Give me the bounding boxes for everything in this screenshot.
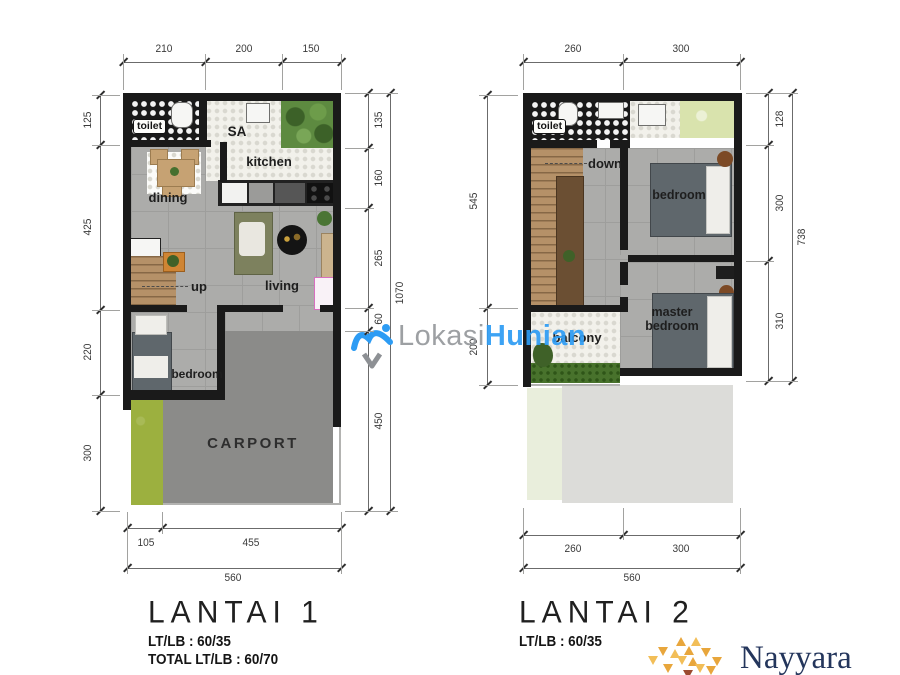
room-label-dining: dining: [149, 190, 188, 205]
ext-line: [623, 508, 624, 540]
dim-line: [523, 535, 740, 536]
bench: [716, 266, 736, 279]
ext-line: [345, 331, 374, 332]
bed-blanket-1: [134, 356, 168, 378]
dim-line: [127, 568, 341, 569]
dim-label: 560: [624, 572, 641, 584]
wall: [123, 140, 211, 147]
ext-line: [162, 512, 163, 534]
side-table-plant: [167, 255, 179, 267]
stair-railing: [556, 176, 584, 307]
roof-green-strip: [527, 388, 562, 500]
laundry-box: [638, 104, 666, 126]
carport-outline-right: [339, 427, 341, 505]
dim-label: 150: [303, 43, 320, 55]
wall: [734, 93, 742, 376]
room-label-sa: SA: [228, 124, 247, 139]
dim-label: 310: [774, 313, 786, 330]
room-label-carport: CARPORT: [207, 435, 299, 452]
watermark-text: LokasiHunian: [398, 320, 586, 353]
sofa-cushion: [239, 222, 265, 256]
dim-line: [792, 93, 793, 381]
ext-line: [479, 95, 518, 96]
logo-triangle: [701, 648, 711, 657]
dim-label: 105: [138, 537, 155, 549]
dim-label: 220: [82, 344, 94, 361]
ext-line: [740, 54, 741, 90]
wall: [217, 305, 225, 400]
dim-line: [523, 568, 740, 569]
room-label-down: down: [588, 156, 622, 171]
bed-pillows-master: [707, 296, 732, 368]
wall: [620, 368, 742, 376]
plan2-ltlb: LT/LB : 60/35: [519, 634, 602, 650]
toilet-sink-2: [598, 102, 624, 119]
room-label-bedroom-2: bedroom: [652, 188, 705, 202]
grass-strip-1: [131, 400, 163, 505]
watermark-part2: Hunian: [485, 320, 586, 353]
kitchen-sink: [249, 183, 273, 203]
logo-triangle: [706, 666, 716, 675]
ext-line: [746, 93, 798, 94]
ext-line: [479, 385, 518, 386]
ext-line: [523, 54, 524, 90]
wall: [199, 100, 207, 143]
dim-label: 160: [373, 170, 385, 187]
logo-triangle: [663, 664, 673, 673]
wall: [320, 305, 341, 312]
carport-outline-bottom: [163, 503, 341, 505]
rug-round: [717, 151, 733, 167]
dim-label: 260: [565, 543, 582, 555]
ext-line: [740, 508, 741, 574]
room-label-living: living: [265, 278, 299, 293]
dim-label: 560: [225, 572, 242, 584]
dim-label: 300: [774, 195, 786, 212]
ext-line: [92, 511, 120, 512]
dim-label: 425: [82, 219, 94, 236]
watermark-part1: Lokasi: [398, 320, 485, 353]
kitchen-stove: [307, 183, 335, 203]
dim-line: [368, 93, 369, 511]
dim-label: 300: [673, 543, 690, 555]
room-label-up: up: [191, 279, 207, 294]
watermark-pin-icon: [350, 314, 394, 370]
kitchen-worktop: [275, 183, 305, 203]
dim-label: 210: [156, 43, 173, 55]
carport-area-left: [163, 400, 225, 505]
ext-line: [92, 310, 120, 311]
wall: [523, 305, 628, 312]
ext-line: [92, 395, 120, 396]
sa-sink: [246, 103, 270, 123]
wall: [333, 93, 341, 427]
dim-label: 200: [236, 43, 253, 55]
ext-line: [746, 381, 798, 382]
carport-area-main: [225, 331, 333, 505]
ext-line: [746, 261, 774, 262]
dim-label: 450: [373, 413, 385, 430]
room-label-toilet-2: toilet: [533, 119, 566, 134]
up-direction-line: [142, 286, 188, 287]
wall: [523, 93, 742, 101]
ext-line: [123, 54, 124, 90]
wall: [523, 140, 597, 148]
logo-triangle: [658, 647, 668, 656]
wall: [620, 262, 628, 285]
garden-patch-2: [680, 101, 734, 138]
bed-pillows-2: [706, 166, 730, 234]
dim-label: 128: [774, 111, 786, 128]
logo-triangle: [691, 637, 701, 646]
dim-line: [768, 93, 769, 381]
nayyara-logo-text: Nayyara: [740, 640, 852, 675]
ext-line: [341, 512, 342, 574]
down-direction-line: [545, 163, 587, 164]
ext-line: [341, 54, 342, 90]
ext-line: [205, 54, 206, 90]
hall-cabinet: [127, 238, 161, 258]
ext-line: [282, 54, 283, 90]
dim-line: [390, 93, 391, 511]
wall: [123, 390, 225, 400]
dim-label: 265: [373, 250, 385, 267]
living-plant: [317, 211, 332, 226]
dim-label: 455: [243, 537, 260, 549]
plan1-total-ltlb: TOTAL LT/LB : 60/70: [148, 652, 278, 668]
logo-triangle: [684, 646, 694, 655]
room-label-toilet-1: toilet: [133, 119, 166, 134]
coffee-table-round: [277, 225, 307, 255]
dim-label: 125: [82, 112, 94, 129]
wall: [610, 140, 630, 148]
room-label-bedroom-1: bedroom: [171, 367, 222, 381]
dim-line: [100, 95, 101, 511]
logo-triangle: [683, 670, 693, 675]
dim-label: 300: [673, 43, 690, 55]
room-label-master-bedroom: master bedroom: [637, 305, 707, 333]
roof-area: [562, 385, 733, 503]
plan1-title: LANTAI 1: [148, 595, 324, 631]
wall: [123, 93, 341, 101]
ext-line: [345, 308, 374, 309]
logo-triangle: [648, 656, 658, 665]
ext-line: [345, 148, 374, 149]
balcony-outline: [531, 384, 620, 386]
ext-line: [92, 145, 120, 146]
dim-label: 545: [468, 193, 480, 210]
ext-line: [523, 508, 524, 574]
ext-line: [345, 208, 374, 209]
logo-triangle: [677, 656, 687, 665]
logo-triangle: [712, 657, 722, 666]
wall: [220, 142, 227, 182]
ext-line: [345, 511, 398, 512]
dim-label: 1070: [394, 282, 406, 305]
wall: [123, 305, 187, 312]
toilet-fixture-1: [171, 102, 193, 128]
floorplan-image: toilet SA kitchen dining up living bedro…: [0, 0, 900, 675]
ext-line: [479, 308, 518, 309]
wall: [217, 305, 283, 312]
ext-line: [345, 93, 398, 94]
table-plant: [170, 167, 179, 176]
dim-label: 738: [796, 229, 808, 246]
dim-label: 260: [565, 43, 582, 55]
dim-label: 135: [373, 112, 385, 129]
ext-line: [127, 512, 128, 574]
plan2-title: LANTAI 2: [519, 595, 695, 631]
logo-triangle: [676, 637, 686, 646]
dim-line: [123, 62, 341, 63]
ext-line: [746, 145, 774, 146]
room-label-kitchen: kitchen: [246, 154, 292, 169]
dim-line: [523, 62, 740, 63]
garden-patch-1: [281, 100, 338, 148]
stair-plant: [563, 250, 575, 262]
plan1-ltlb: LT/LB : 60/35: [148, 634, 231, 650]
kitchen-cabinet: [222, 183, 247, 203]
ext-line: [623, 54, 624, 90]
wall: [628, 255, 742, 262]
logo-triangle: [695, 664, 705, 673]
ext-line: [92, 95, 120, 96]
bed-pillow-1: [135, 315, 167, 335]
dim-label: 300: [82, 445, 94, 462]
